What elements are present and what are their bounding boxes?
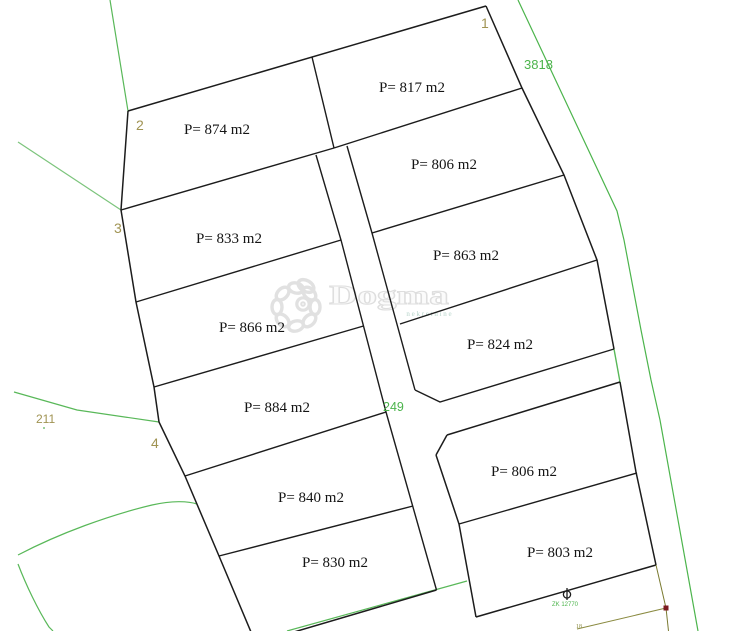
svg-text:211: 211	[36, 412, 55, 426]
svg-text:P= 884 m2: P= 884 m2	[244, 400, 310, 416]
svg-text:P= 824 m2: P= 824 m2	[467, 337, 533, 353]
svg-text:249: 249	[383, 400, 404, 414]
svg-text:1: 1	[481, 15, 489, 31]
svg-text:2: 2	[136, 117, 144, 133]
svg-text:P= 806 m2: P= 806 m2	[491, 464, 557, 480]
svg-text:P= 866 m2: P= 866 m2	[219, 320, 285, 336]
svg-text:P= 830 m2: P= 830 m2	[302, 555, 368, 571]
svg-text:4: 4	[151, 435, 159, 451]
svg-text:ZK 12770: ZK 12770	[552, 602, 579, 608]
svg-text:P= 863 m2: P= 863 m2	[433, 248, 499, 264]
svg-text:P= 803 m2: P= 803 m2	[527, 545, 593, 561]
svg-text:3: 3	[114, 220, 122, 236]
svg-text:P= 806 m2: P= 806 m2	[411, 157, 477, 173]
svg-text:18: 18	[576, 624, 582, 630]
svg-text:P= 840 m2: P= 840 m2	[278, 490, 344, 506]
svg-text:3818: 3818	[524, 57, 553, 72]
svg-text:P= 874 m2: P= 874 m2	[184, 122, 250, 138]
svg-text:P= 833 m2: P= 833 m2	[196, 231, 262, 247]
svg-text:P= 817 m2: P= 817 m2	[379, 80, 445, 96]
